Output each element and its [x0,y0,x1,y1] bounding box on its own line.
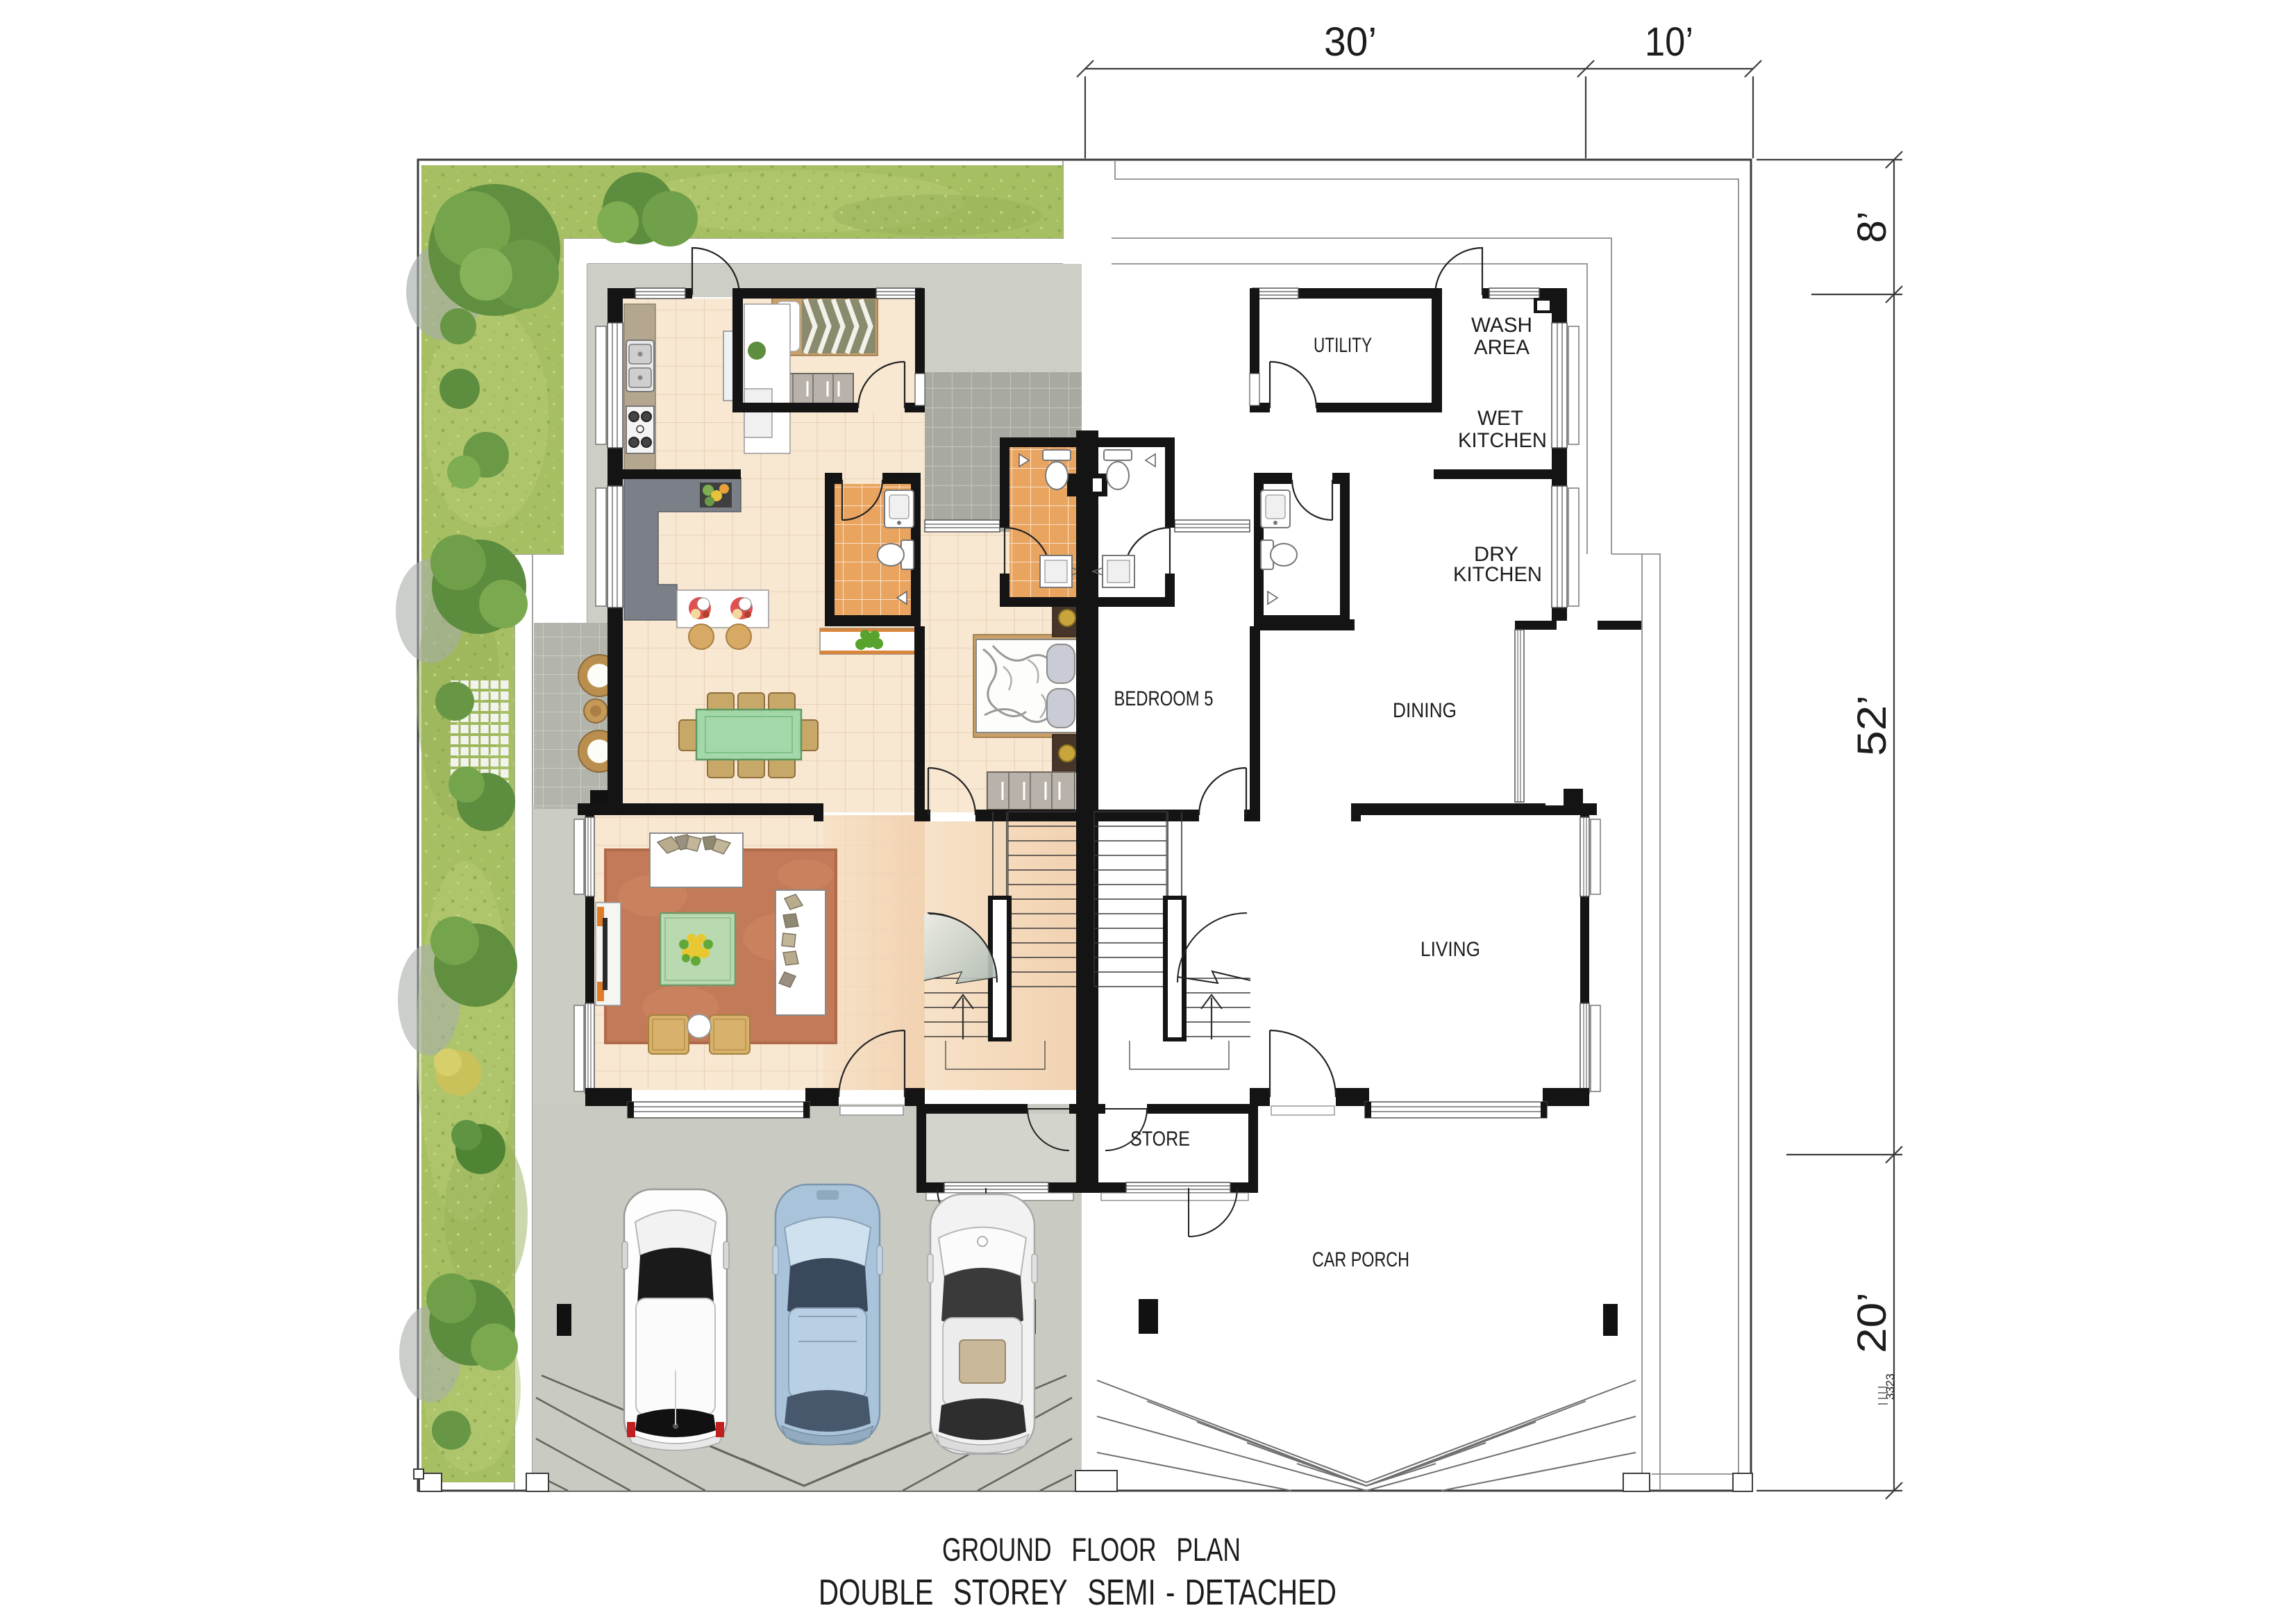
svg-text:8’: 8’ [1850,211,1895,243]
svg-text:AREA: AREA [1474,336,1530,359]
svg-text:KITCHEN: KITCHEN [1458,429,1547,452]
svg-text:WASH: WASH [1471,314,1532,337]
svg-text:10’: 10’ [1645,19,1693,65]
svg-text:CAR PORCH: CAR PORCH [1312,1248,1409,1271]
svg-text:GROUND FLOOR PLAN: GROUND FLOOR PLAN [942,1531,1241,1568]
svg-text:52’: 52’ [1850,695,1895,756]
svg-text:UTILITY: UTILITY [1314,334,1372,357]
svg-text:30’: 30’ [1324,19,1377,65]
svg-text:3323: 3323 [1884,1373,1897,1400]
svg-text:20’: 20’ [1850,1292,1895,1353]
svg-text:STORE: STORE [1130,1128,1190,1150]
svg-text:KITCHEN: KITCHEN [1453,563,1542,586]
svg-text:LIVING: LIVING [1421,938,1480,961]
svg-text:DOUBLE STOREY SEMI - DETACHE: DOUBLE STOREY SEMI - DETACHED [819,1573,1336,1613]
svg-text:WET: WET [1477,407,1523,430]
svg-text:BEDROOM 5: BEDROOM 5 [1114,687,1214,710]
svg-text:DINING: DINING [1393,699,1457,722]
